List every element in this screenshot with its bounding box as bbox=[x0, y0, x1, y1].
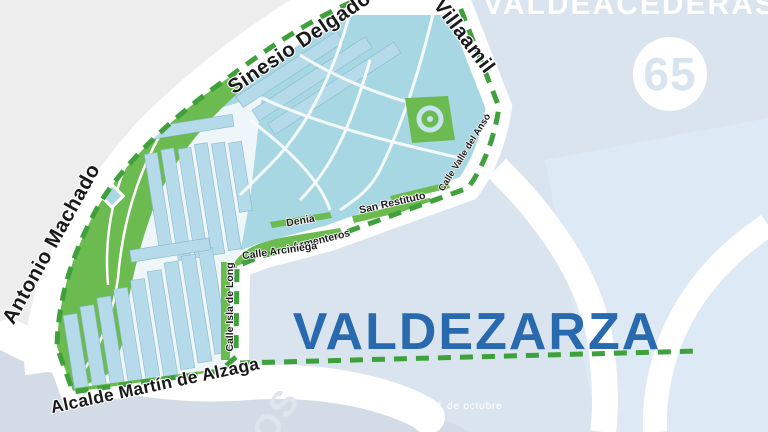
plaza-ring-center bbox=[427, 116, 433, 122]
street-label-calle-isla-de-long: Calle Isla de Long bbox=[224, 262, 236, 351]
caption-text: el 1 de octubre bbox=[424, 400, 502, 412]
adjacent-district-label: VALDEACEDERAS bbox=[483, 0, 768, 21]
valdezarza-map: VALDEACEDERAS 65 OS el 1 de octubre bbox=[0, 0, 768, 432]
map-stage: VALDEACEDERAS 65 OS el 1 de octubre bbox=[0, 0, 768, 432]
neighborhood-title: VALDEZARZA bbox=[293, 303, 662, 361]
district-number: 65 bbox=[643, 48, 696, 100]
